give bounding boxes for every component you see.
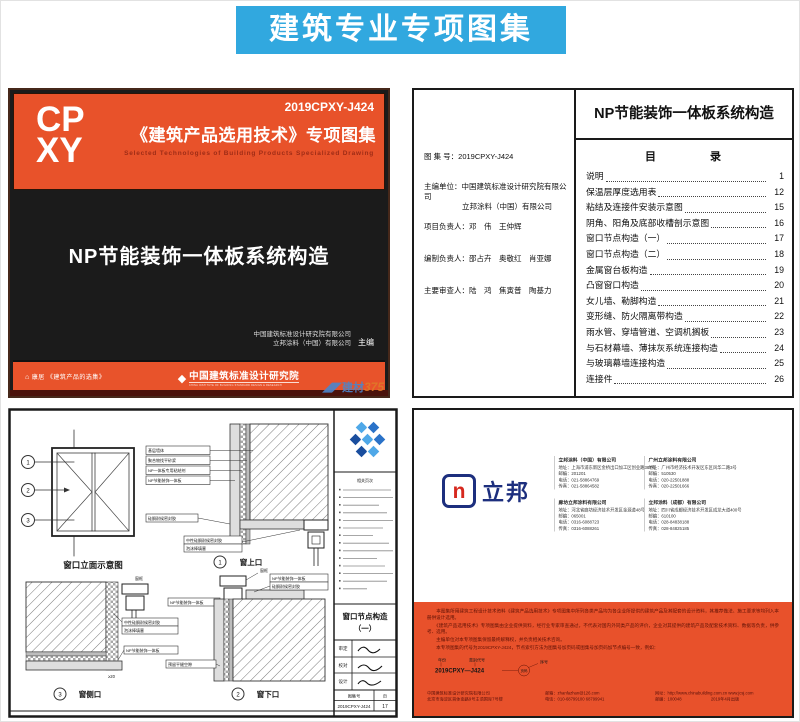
footer-line: 北京市海淀区首体南路9号主语国际7号楼 bbox=[427, 696, 545, 702]
jamb-board-label: NP节能装饰一体板 bbox=[126, 647, 160, 653]
contact-block: 廊坊立邦涂料有限公司 地址：河北省廊坊经济技术开发区金源道48号邮编：06500… bbox=[554, 498, 642, 531]
chief-editor-label: 主编单位： bbox=[424, 182, 462, 191]
sealant-label: 硅酮耐候密封胶 bbox=[148, 515, 176, 521]
watermark: ◢◤建材375 bbox=[322, 378, 384, 396]
contact-lines: 地址：广州市经济技术开发区东区风华二路3号邮编：510530电话：020-225… bbox=[649, 465, 793, 490]
contents-page-title: NP节能装饰一体板系统构造 bbox=[576, 90, 792, 140]
reviewer-label: 主要审查人： bbox=[424, 286, 469, 295]
footer-web-column: 网址：http://www.chinabuilding.com.cn www.j… bbox=[655, 690, 779, 702]
atlas-code: 2019CPXY-J424 bbox=[285, 100, 374, 114]
reviewer-field: 主要审查人：陆 鸿 焦寅普 陶基力 bbox=[424, 286, 570, 296]
series-subtitle-en: Selected Technologies of Building Produc… bbox=[124, 150, 374, 157]
notes-paragraph: 《建筑产品选用技术》专项图集由企业提供资料，经行业专家审查通过，不代表对国内外同… bbox=[427, 622, 779, 635]
titleblock-page-value: 17 bbox=[382, 704, 388, 710]
toc-item-label: 窗口节点构造（二） bbox=[586, 247, 665, 263]
house-icon: ⌂ bbox=[25, 374, 30, 381]
toc-row: 粘结及连接件安装示意图 15 bbox=[586, 200, 784, 216]
titleblock-index-heading: 相关页次 bbox=[357, 477, 373, 483]
contact-company-name: 立邦涂料（成都）有限公司 bbox=[649, 498, 793, 505]
panel-back-cover: n 立邦 立邦涂料（中国）有限公司 地址：上海市浦东新区金桥出口加工区创业路38… bbox=[412, 408, 794, 718]
jamb-sealant-line2: 泡沫棒填塞 bbox=[124, 627, 144, 633]
notes-paragraph: 主编单位对本专项图集保留最终解释权，并负责相关技术咨询。 bbox=[427, 637, 779, 643]
toc-item-label: 连接件 bbox=[586, 372, 612, 388]
titleblock-title-line2: （一） bbox=[354, 623, 377, 633]
toc-heading: 目 录 bbox=[576, 148, 792, 164]
series-title: 《建筑产品选用技术》专项图集 bbox=[131, 121, 376, 146]
toc-item-page: 22 bbox=[768, 309, 784, 325]
toc-item-label: 保温层厚度选用表 bbox=[586, 185, 656, 201]
contact-block: 立邦涂料（成都）有限公司 地址：四川省成都经济技术开发区成龙大道400号邮编：6… bbox=[644, 498, 792, 531]
toc-item-page: 19 bbox=[768, 263, 784, 279]
jamb-sealant-line1: 中性硅酮耐候密封胶 bbox=[124, 619, 160, 625]
contact-lines: 地址：上海市浦东新区金桥出口加工区创业路387号邮编：201201电话：021-… bbox=[559, 465, 643, 490]
toc-item-page: 24 bbox=[768, 341, 784, 357]
toc-row: 变形缝、防火隔离带构造 22 bbox=[586, 309, 784, 325]
contact-company-name: 廊坊立邦涂料有限公司 bbox=[559, 498, 643, 505]
contact-lines: 地址：河北省廊坊经济技术开发区金源道48号邮编：065001电话：0316-60… bbox=[559, 507, 643, 532]
cover-footer-left-text: 康居 《建筑产品的选集》 bbox=[32, 375, 106, 381]
toc-item-page: 18 bbox=[768, 247, 784, 263]
notes-paragraph: 本图集所用建筑工程设计技术资料《建筑产品选用技术》专项图集中所列各类产品均为各企… bbox=[427, 608, 779, 621]
window-detail-drawing: 1 2 3 窗口立面示意图 基层墙体 聚合物找平砂浆 NP一体板专用粘结剂 NP… bbox=[8, 408, 398, 718]
toc-item-label: 凸窗窗口构造 bbox=[586, 278, 639, 294]
contact-column-1: 立邦涂料（中国）有限公司 地址：上海市浦东新区金桥出口加工区创业路387号邮编：… bbox=[554, 456, 642, 625]
contact-company-name: 广州立邦涂料有限公司 bbox=[649, 456, 793, 463]
toc-item-page: 12 bbox=[768, 185, 784, 201]
atlas-code-diagram: 年份 类别代号 2019CPXY—J424 页码 序号 bbox=[427, 655, 577, 681]
detail3-caption: 窗侧口 bbox=[79, 689, 102, 699]
footer-line: 邮编：100048 2019年4月出版 bbox=[655, 696, 779, 702]
toc-item-label: 说明 bbox=[586, 169, 604, 185]
layer-label-4: NP节能装饰一体板 bbox=[148, 477, 182, 483]
diagram-page-label: 页码 bbox=[521, 668, 529, 673]
detail1-caption: 窗上口 bbox=[240, 557, 263, 567]
project-lead-label: 项目负责人： bbox=[424, 222, 469, 231]
editor-line1: 中国建筑标准设计研究院有限公司 bbox=[254, 330, 352, 339]
toc-item-page: 16 bbox=[768, 216, 784, 232]
contents-info-column: 图 集 号：2019CPXY-J424 主编单位：中国建筑标准设计研究院有限公司… bbox=[414, 90, 574, 396]
toc-item-page: 17 bbox=[768, 231, 784, 247]
cover-orange-band: CP XY 2019CPXY-J424 《建筑产品选用技术》专项图集 Selec… bbox=[13, 93, 385, 190]
toc-row: 与玻璃幕墙连接构造 25 bbox=[586, 356, 784, 372]
toc-row: 保温层厚度选用表 12 bbox=[586, 185, 784, 201]
page-title: 建筑专业专项图集 bbox=[236, 6, 566, 54]
cover-credits: 中国建筑标准设计研究院有限公司 立邦涂料（中国）有限公司 主编 bbox=[254, 330, 375, 348]
toc-item-label: 金属窗台板构造 bbox=[586, 263, 648, 279]
contact-line: 传真：0316-6088261 bbox=[559, 525, 643, 531]
contact-block: 立邦涂料（中国）有限公司 地址：上海市浦东新区金桥出口加工区创业路387号邮编：… bbox=[554, 456, 642, 489]
toc-item-page: 15 bbox=[768, 200, 784, 216]
footer-publisher-column: 中国建筑标准设计研究院有限公司北京市海淀区首体南路9号主语国际7号楼 bbox=[427, 690, 545, 702]
toc-leader-dots bbox=[720, 352, 766, 353]
editor-line2: 立邦涂料（中国）有限公司 bbox=[254, 339, 352, 348]
toc-item-label: 与玻璃幕墙连接构造 bbox=[586, 356, 665, 372]
compiler-value: 邵占卉 奥敬红 肖亚娜 bbox=[469, 254, 552, 263]
cpxy-logo: CP XY bbox=[36, 104, 85, 166]
atlas-number-label: 图 集 号： bbox=[424, 152, 458, 161]
cpxy-logo-line2: XY bbox=[36, 135, 85, 166]
gap-label: 预留平缝空隙 bbox=[168, 661, 192, 667]
contact-column-2: 广州立邦涂料有限公司 地址：广州市经济技术开发区东区风华二路3号邮编：51053… bbox=[644, 456, 792, 625]
detail2-caption: 窗下口 bbox=[257, 689, 280, 699]
toc-leader-dots bbox=[658, 196, 766, 197]
frame-label-jamb: 窗框 bbox=[135, 575, 143, 581]
diagram-code: 2019CPXY—J424 bbox=[435, 668, 485, 674]
sealant2-label-line2: 泡沫棒填塞 bbox=[186, 545, 206, 551]
contact-line: 传真：028-84825185 bbox=[649, 525, 793, 531]
titleblock-atlas-label: 图集号 bbox=[348, 693, 361, 700]
toc-leader-dots bbox=[614, 383, 766, 384]
toc-leader-dots bbox=[667, 259, 766, 260]
contact-lines: 地址：四川省成都经济技术开发区成龙大道400号邮编：610100电话：028-8… bbox=[649, 507, 793, 532]
sig-label-approve: 审定 bbox=[339, 645, 348, 652]
cover-footer-left: ⌂康居 《建筑产品的选集》 bbox=[25, 372, 105, 381]
toc-leader-dots bbox=[685, 212, 766, 213]
contact-line: 传真：020-22501666 bbox=[649, 483, 793, 489]
atlas-number-field: 图 集 号：2019CPXY-J424 bbox=[424, 152, 570, 162]
toc-item-label: 与石材幕墙、薄抹灰系统连接构造 bbox=[586, 341, 718, 357]
layer-label-1: 基层墙体 bbox=[148, 447, 164, 453]
sig-label-check: 校对 bbox=[339, 662, 348, 669]
toc-row: 说明 1 bbox=[586, 169, 784, 185]
atlas-number-value: 2019CPXY-J424 bbox=[458, 152, 513, 161]
cover-main-title: NP节能装饰一体板系统构造 bbox=[10, 240, 388, 269]
contact-line: 传真：021-58864582 bbox=[559, 483, 643, 489]
toc-item-label: 变形缝、防火隔离带构造 bbox=[586, 309, 683, 325]
toc-item-page: 21 bbox=[768, 294, 784, 310]
panel-contents-page: 图 集 号：2019CPXY-J424 主编单位：中国建筑标准设计研究院有限公司… bbox=[412, 88, 794, 398]
diagram-year-label: 年份 bbox=[438, 656, 446, 662]
diagram-type-label: 类别代号 bbox=[469, 656, 485, 662]
compiler-field: 编制负责人：邵占卉 奥敬红 肖亚娜 bbox=[424, 254, 570, 264]
editor-role: 主编 bbox=[358, 337, 374, 348]
toc-list: 说明 1 保温层厚度选用表 12 粘结及连接件安装示意图 15 阴角、阳角及底部… bbox=[576, 164, 792, 387]
toc-leader-dots bbox=[658, 305, 766, 306]
toc-row: 金属窗台板构造 19 bbox=[586, 263, 784, 279]
titleblock-atlas-value: 2019CPXY-J424 bbox=[337, 704, 371, 709]
contact-company-name: 立邦涂料（中国）有限公司 bbox=[559, 456, 643, 463]
toc-item-label: 雨水管、穿墙管道、空调机搁板 bbox=[586, 325, 709, 341]
panel-cover: CP XY 2019CPXY-J424 《建筑产品选用技术》专项图集 Selec… bbox=[8, 88, 390, 398]
sill-board-label: NP节能装饰一体板 bbox=[272, 575, 306, 581]
toc-leader-dots bbox=[711, 337, 766, 338]
toc-row: 窗口节点构造（一） 17 bbox=[586, 231, 784, 247]
footer-line: 电话：010-68799100 68799941 bbox=[545, 696, 655, 702]
toc-item-page: 20 bbox=[768, 278, 784, 294]
notes-paragraph: 本专项图集的代号为2019CPXY-J424，节点索引方法为图集号加页码或图集号… bbox=[427, 644, 779, 650]
toc-row: 连接件 26 bbox=[586, 372, 784, 388]
project-lead-field: 项目负责人：邓 伟 王仲辉 bbox=[424, 222, 570, 232]
back-cover-notes-section: 本图集所用建筑工程设计技术资料《建筑产品选用技术》专项图集中所列各类产品均为各企… bbox=[414, 602, 792, 716]
layer-label-2: 聚合物找平砂浆 bbox=[148, 457, 176, 463]
watermark-text: 建材 bbox=[342, 382, 364, 394]
institute-name: 中国建筑标准设计研究院 bbox=[189, 371, 299, 383]
watermark-icon: ◢◤ bbox=[322, 379, 342, 394]
sig-label-design: 设计 bbox=[339, 678, 348, 685]
reviewer-value: 陆 鸿 焦寅普 陶基力 bbox=[469, 286, 552, 295]
toc-item-page: 23 bbox=[768, 325, 784, 341]
nippon-logo: n 立邦 bbox=[442, 474, 530, 508]
toc-row: 与石材幕墙、薄抹灰系统连接构造 24 bbox=[586, 341, 784, 357]
nippon-logo-icon: n bbox=[442, 474, 476, 508]
toc-leader-dots bbox=[711, 227, 766, 228]
frame-label-sill: 窗框 bbox=[260, 567, 268, 573]
titleblock-title-line1: 窗口节点构造 bbox=[343, 611, 388, 621]
toc-row: 凸窗窗口构造 20 bbox=[586, 278, 784, 294]
compiler-label: 编制负责人： bbox=[424, 254, 469, 263]
toc-item-label: 女儿墙、勒脚构造 bbox=[586, 294, 656, 310]
toc-leader-dots bbox=[606, 181, 766, 182]
toc-item-label: 窗口节点构造（一） bbox=[586, 231, 665, 247]
toc-leader-dots bbox=[641, 290, 766, 291]
back-cover-footer: 中国建筑标准设计研究院有限公司北京市海淀区首体南路9号主语国际7号楼 邮箱：zh… bbox=[427, 690, 779, 702]
nippon-brand-name: 立邦 bbox=[482, 475, 530, 507]
toc-item-page: 1 bbox=[768, 169, 784, 185]
sealant2-label-line1: 中性硅酮耐候密封胶 bbox=[186, 537, 222, 543]
toc-leader-dots bbox=[667, 243, 766, 244]
layer-label-3: NP一体板专用粘结剂 bbox=[148, 467, 186, 473]
panel-detail-drawing: 1 2 3 窗口立面示意图 基层墙体 聚合物找平砂浆 NP一体板专用粘结剂 NP… bbox=[8, 408, 398, 718]
toc-row: 阴角、阳角及底部收槽剖示意图 16 bbox=[586, 216, 784, 232]
footer-contact-column: 邮箱：zhanfazhan@126.com电话：010-68799100 687… bbox=[545, 690, 655, 702]
toc-leader-dots bbox=[650, 274, 766, 275]
toc-row: 窗口节点构造（二） 18 bbox=[586, 247, 784, 263]
institute-emblem-icon: ◆ bbox=[178, 372, 186, 385]
contact-block: 广州立邦涂料有限公司 地址：广州市经济技术开发区东区风华二路3号邮编：51053… bbox=[644, 456, 792, 489]
contents-toc-column: NP节能装饰一体板系统构造 目 录 说明 1 保温层厚度选用表 12 粘结及连接… bbox=[576, 90, 792, 396]
chief-editor-value2: 立邦涂料（中国）有限公司 bbox=[424, 202, 570, 212]
usage-notes: 本图集所用建筑工程设计技术资料《建筑产品选用技术》专项图集中所列各类产品均为各企… bbox=[427, 608, 779, 651]
watermark-number: 375 bbox=[364, 380, 384, 394]
toc-item-label: 阴角、阳角及底部收槽剖示意图 bbox=[586, 216, 709, 232]
banner: 建筑专业专项图集 bbox=[236, 6, 566, 54]
sill-board-label-left: NP节能装饰一体板 bbox=[170, 599, 204, 605]
chief-editor-field: 主编单位：中国建筑标准设计研究院有限公司 立邦涂料（中国）有限公司 bbox=[424, 182, 570, 212]
toc-leader-dots bbox=[685, 321, 766, 322]
project-lead-value: 邓 伟 王仲辉 bbox=[469, 222, 522, 231]
toc-row: 女儿墙、勒脚构造 21 bbox=[586, 294, 784, 310]
toc-row: 雨水管、穿墙管道、空调机搁板 23 bbox=[586, 325, 784, 341]
toc-leader-dots bbox=[667, 368, 766, 369]
toc-item-page: 25 bbox=[768, 356, 784, 372]
diagram-seq-label: 序号 bbox=[540, 658, 548, 664]
jamb-dim: ≥20 bbox=[108, 674, 116, 679]
sill-sealant-label: 硅酮耐候密封胶 bbox=[272, 583, 300, 589]
toc-item-label: 粘结及连接件安装示意图 bbox=[586, 200, 683, 216]
toc-item-page: 26 bbox=[768, 372, 784, 388]
elevation-caption: 窗口立面示意图 bbox=[63, 560, 123, 570]
